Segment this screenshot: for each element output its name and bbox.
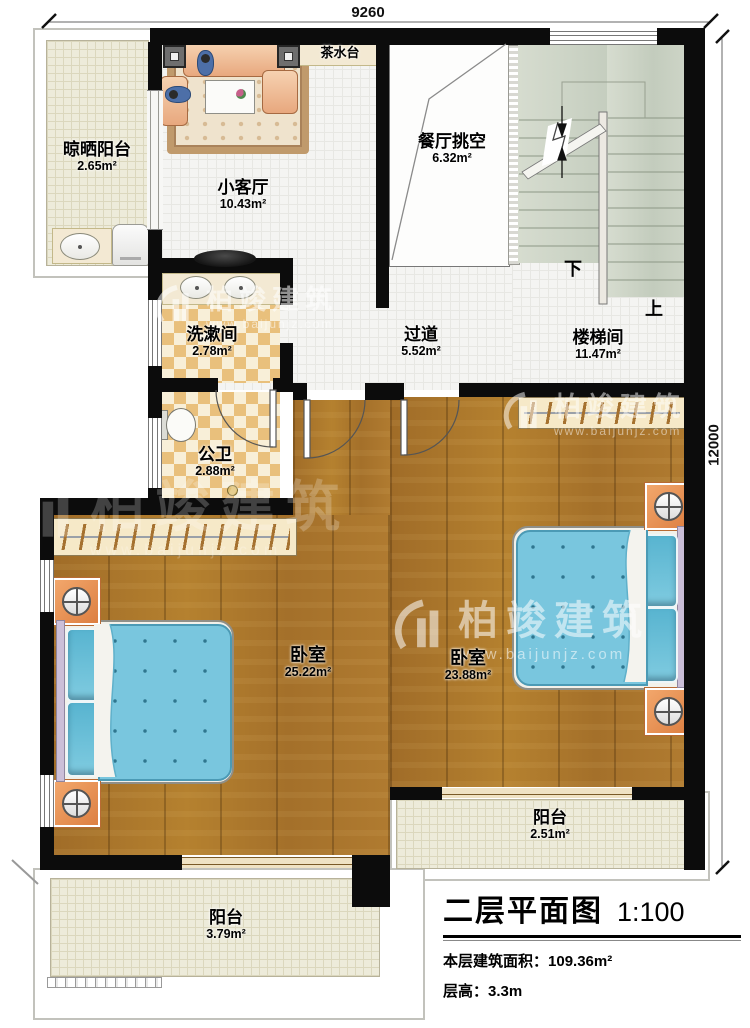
balcony-railing <box>47 977 162 988</box>
label-corridor: 过道 5.52m² <box>401 325 441 358</box>
wall-washroom-right-upper <box>280 273 293 305</box>
label-bedroom-left: 卧室 25.22m² <box>285 645 332 679</box>
dimension-top: 9260 <box>351 4 384 21</box>
wall-washroom-right-lower <box>280 343 293 383</box>
title-underline <box>443 935 741 941</box>
label-balcony-right: 阳台 2.51m² <box>530 808 570 841</box>
wall-bedroomleft-south <box>40 855 182 870</box>
side-table-left <box>163 45 186 68</box>
room-area: 2.78m² <box>187 344 238 358</box>
label-bedroom-right: 卧室 23.88m² <box>445 648 492 682</box>
floor-height-label: 层高： <box>443 983 488 1000</box>
label-washroom: 洗漱间 2.78m² <box>187 325 238 358</box>
label-drying-balcony: 晾晒阳台 2.65m² <box>63 140 131 173</box>
wardrobe-bedroom-left <box>52 518 297 556</box>
label-tea-counter: 茶水台 <box>320 46 359 61</box>
room-area: 2.51m² <box>530 827 570 841</box>
room-name: 过道 <box>401 325 441 344</box>
room-name: 卧室 <box>285 645 332 665</box>
nightstand-left-1 <box>53 578 100 625</box>
bed-right-blanket-fold <box>616 530 646 682</box>
stair-down-label: 下 <box>564 255 582 281</box>
room-area: 25.22m² <box>285 665 332 679</box>
nightstand-left-2 <box>53 780 100 827</box>
room-name: 洗漱间 <box>187 325 238 344</box>
plan-scale: 1:100 <box>617 897 685 928</box>
wall-right <box>684 28 705 870</box>
washing-machine <box>112 224 149 266</box>
label-dining-void: 餐厅挑空 6.32m² <box>418 132 486 165</box>
stair-up-label: 上 <box>645 295 663 321</box>
floor-area-line: 本层建筑面积：109.36m² <box>443 950 748 971</box>
floor-area-value: 109.36m² <box>548 953 612 970</box>
bed-left-blanket-fold <box>94 624 124 777</box>
window-stairwell-top <box>550 28 657 45</box>
room-area: 11.47m² <box>573 347 624 361</box>
wall-corridor-stub-b <box>365 383 404 400</box>
sliding-door-balcony-right <box>442 788 632 798</box>
room-name: 茶水台 <box>320 46 359 61</box>
stair-flight-lower <box>607 45 684 297</box>
room-name: 阳台 <box>530 808 570 827</box>
window-bedroomleft-upper <box>40 560 54 612</box>
window-toilet <box>148 418 162 488</box>
toilet-bowl <box>166 408 196 442</box>
room-name: 阳台 <box>206 908 246 927</box>
person-sitting-left <box>165 86 191 103</box>
label-stairwell: 楼梯间 11.47m² <box>573 328 624 361</box>
room-area: 23.88m² <box>445 668 492 682</box>
wall-toilet-bedroomleft <box>40 498 293 515</box>
person-sitting-sofa <box>197 50 214 76</box>
wall-living-left-upper <box>148 42 162 92</box>
room-area: 5.52m² <box>401 344 441 358</box>
label-living-room: 小客厅 10.43m² <box>218 178 269 211</box>
room-area: 2.88m² <box>195 464 235 478</box>
sliding-door-drying-balcony <box>147 90 163 230</box>
dimension-right: 12000 <box>706 424 723 466</box>
page-title: 二层平面图 <box>443 886 603 930</box>
wall-bedroomleft-south-stub <box>352 855 390 907</box>
room-name: 小客厅 <box>218 178 269 197</box>
room-area: 6.32m² <box>418 151 486 165</box>
floor-height-value: 3.3m <box>488 983 522 1000</box>
washroom-sink-1 <box>180 276 212 299</box>
wardrobe-bedroom-right <box>518 397 686 429</box>
floor-plan-canvas: 柏竣建筑 www.baijunjz.com 柏竣建筑 www.baijunjz.… <box>0 0 750 1028</box>
floor-height-line: 层高：3.3m <box>443 980 748 1001</box>
window-bedroomleft-lower <box>40 775 54 827</box>
wall-washroom-toilet-b <box>273 378 293 392</box>
room-area: 10.43m² <box>218 197 269 211</box>
room-area: 2.65m² <box>63 159 131 173</box>
bed-left-headboard <box>56 620 65 782</box>
armchair <box>262 70 298 114</box>
wall-bedroomright-south-b <box>632 787 692 800</box>
title-row: 二层平面图 1:100 <box>443 886 748 930</box>
laundry-sink <box>60 233 100 260</box>
label-balcony-left: 阳台 3.79m² <box>206 908 246 941</box>
floor-drain <box>227 485 238 496</box>
wall-basin <box>194 250 256 267</box>
room-name: 卧室 <box>445 648 492 668</box>
washroom-sink-2 <box>224 276 256 299</box>
side-table-right <box>277 45 300 68</box>
wall-corridor-stub-a <box>293 383 307 400</box>
room-name: 晾晒阳台 <box>63 140 131 159</box>
wall-bedroomright-south-a <box>390 787 442 800</box>
wall-washroom-toilet-a <box>148 378 218 392</box>
sliding-door-balcony-left <box>182 857 352 868</box>
wall-corridor-bedroomright <box>459 383 692 397</box>
title-block: 二层平面图 1:100 本层建筑面积：109.36m² 层高：3.3m <box>443 886 748 1001</box>
room-name: 公卫 <box>195 445 235 464</box>
room-area: 3.79m² <box>206 927 246 941</box>
wall-dining-void-left <box>376 42 389 308</box>
floor-area-label: 本层建筑面积： <box>443 953 548 970</box>
label-toilet: 公卫 2.88m² <box>195 445 235 478</box>
window-washroom <box>148 300 162 366</box>
room-name: 楼梯间 <box>573 328 624 347</box>
room-name: 餐厅挑空 <box>418 132 486 151</box>
coffee-table <box>205 80 255 114</box>
